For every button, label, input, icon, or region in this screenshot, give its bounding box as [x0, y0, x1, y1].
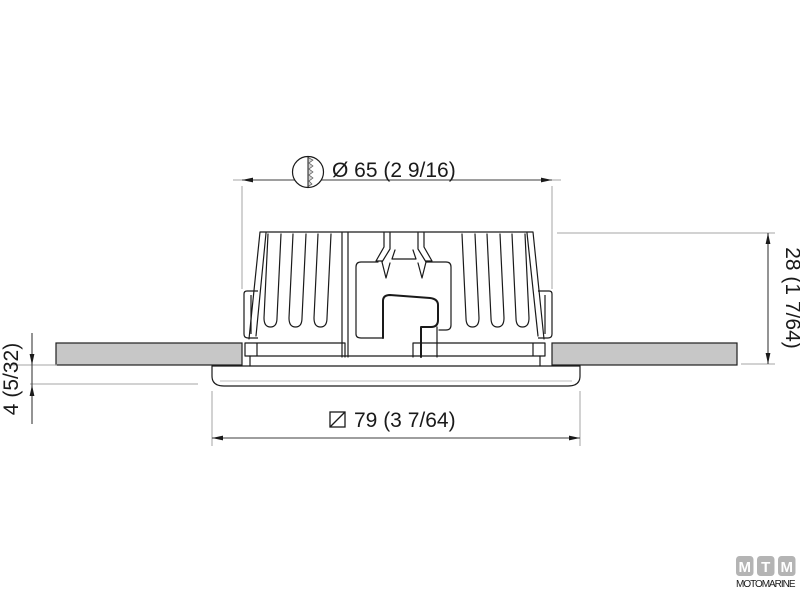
heatsink-outline — [249, 232, 544, 339]
logo-letter: M — [738, 559, 751, 576]
logo-wordmark: MOTOMARINE — [736, 579, 796, 590]
dim-flange-protrusion-label: 4 (5/32) — [0, 343, 23, 415]
bezel-flange — [212, 366, 580, 386]
dovetail-inner — [392, 250, 416, 259]
fin-groove — [264, 234, 281, 327]
fin-groove — [314, 234, 331, 327]
technical-drawing: Ø 65 (2 9/16) 28 (1 7/64) 4 (5/32) 79 (3… — [0, 0, 800, 600]
square-symbol-diagonal — [330, 412, 345, 427]
ceiling-panel-left — [56, 343, 242, 365]
dovetail-spike-right — [418, 262, 426, 278]
dim-hole-diameter-label: Ø 65 (2 9/16) — [332, 159, 456, 182]
arrow-down — [766, 353, 771, 364]
flange-outline — [212, 366, 580, 386]
fin-groove — [289, 234, 306, 327]
cavity-left — [356, 262, 383, 338]
arrow-left — [212, 436, 223, 441]
dim-flange-width: 79 (3 7/64) — [212, 391, 580, 446]
dim-flange-width-label: 79 (3 7/64) — [354, 409, 456, 432]
arrow-right — [569, 436, 580, 441]
logo-letter: T — [761, 559, 770, 576]
center-step — [383, 295, 438, 357]
dovetail-lines — [376, 233, 432, 262]
arrow-up — [30, 385, 35, 396]
fin-groove — [462, 234, 479, 327]
arrow-right — [541, 178, 552, 183]
dim-height-label: 28 (1 7/64) — [781, 247, 800, 349]
arrow-down — [30, 354, 35, 365]
dovetail-spike-left — [382, 262, 390, 278]
fin-groove — [512, 234, 529, 327]
mtm-logo: M T M MOTOMARINE — [736, 556, 796, 590]
dim-hole-diameter: Ø 65 (2 9/16) — [233, 157, 561, 290]
drawing-canvas: Ø 65 (2 9/16) 28 (1 7/64) 4 (5/32) 79 (3… — [0, 0, 800, 600]
neck — [250, 356, 540, 366]
dovetail-slot — [376, 233, 432, 278]
center-rib — [342, 233, 348, 357]
screw-section-icon — [293, 157, 324, 188]
logo-letter: M — [780, 559, 793, 576]
heatsink-body — [245, 232, 545, 366]
arrow-left — [242, 178, 253, 183]
base-plate — [245, 343, 545, 357]
extension-lines — [8, 365, 198, 384]
ceiling-panel-right — [552, 343, 737, 365]
fin-groove — [487, 234, 504, 327]
ceiling-panels — [56, 343, 737, 365]
arrow-up — [766, 233, 771, 244]
square-symbol-icon — [330, 412, 345, 427]
